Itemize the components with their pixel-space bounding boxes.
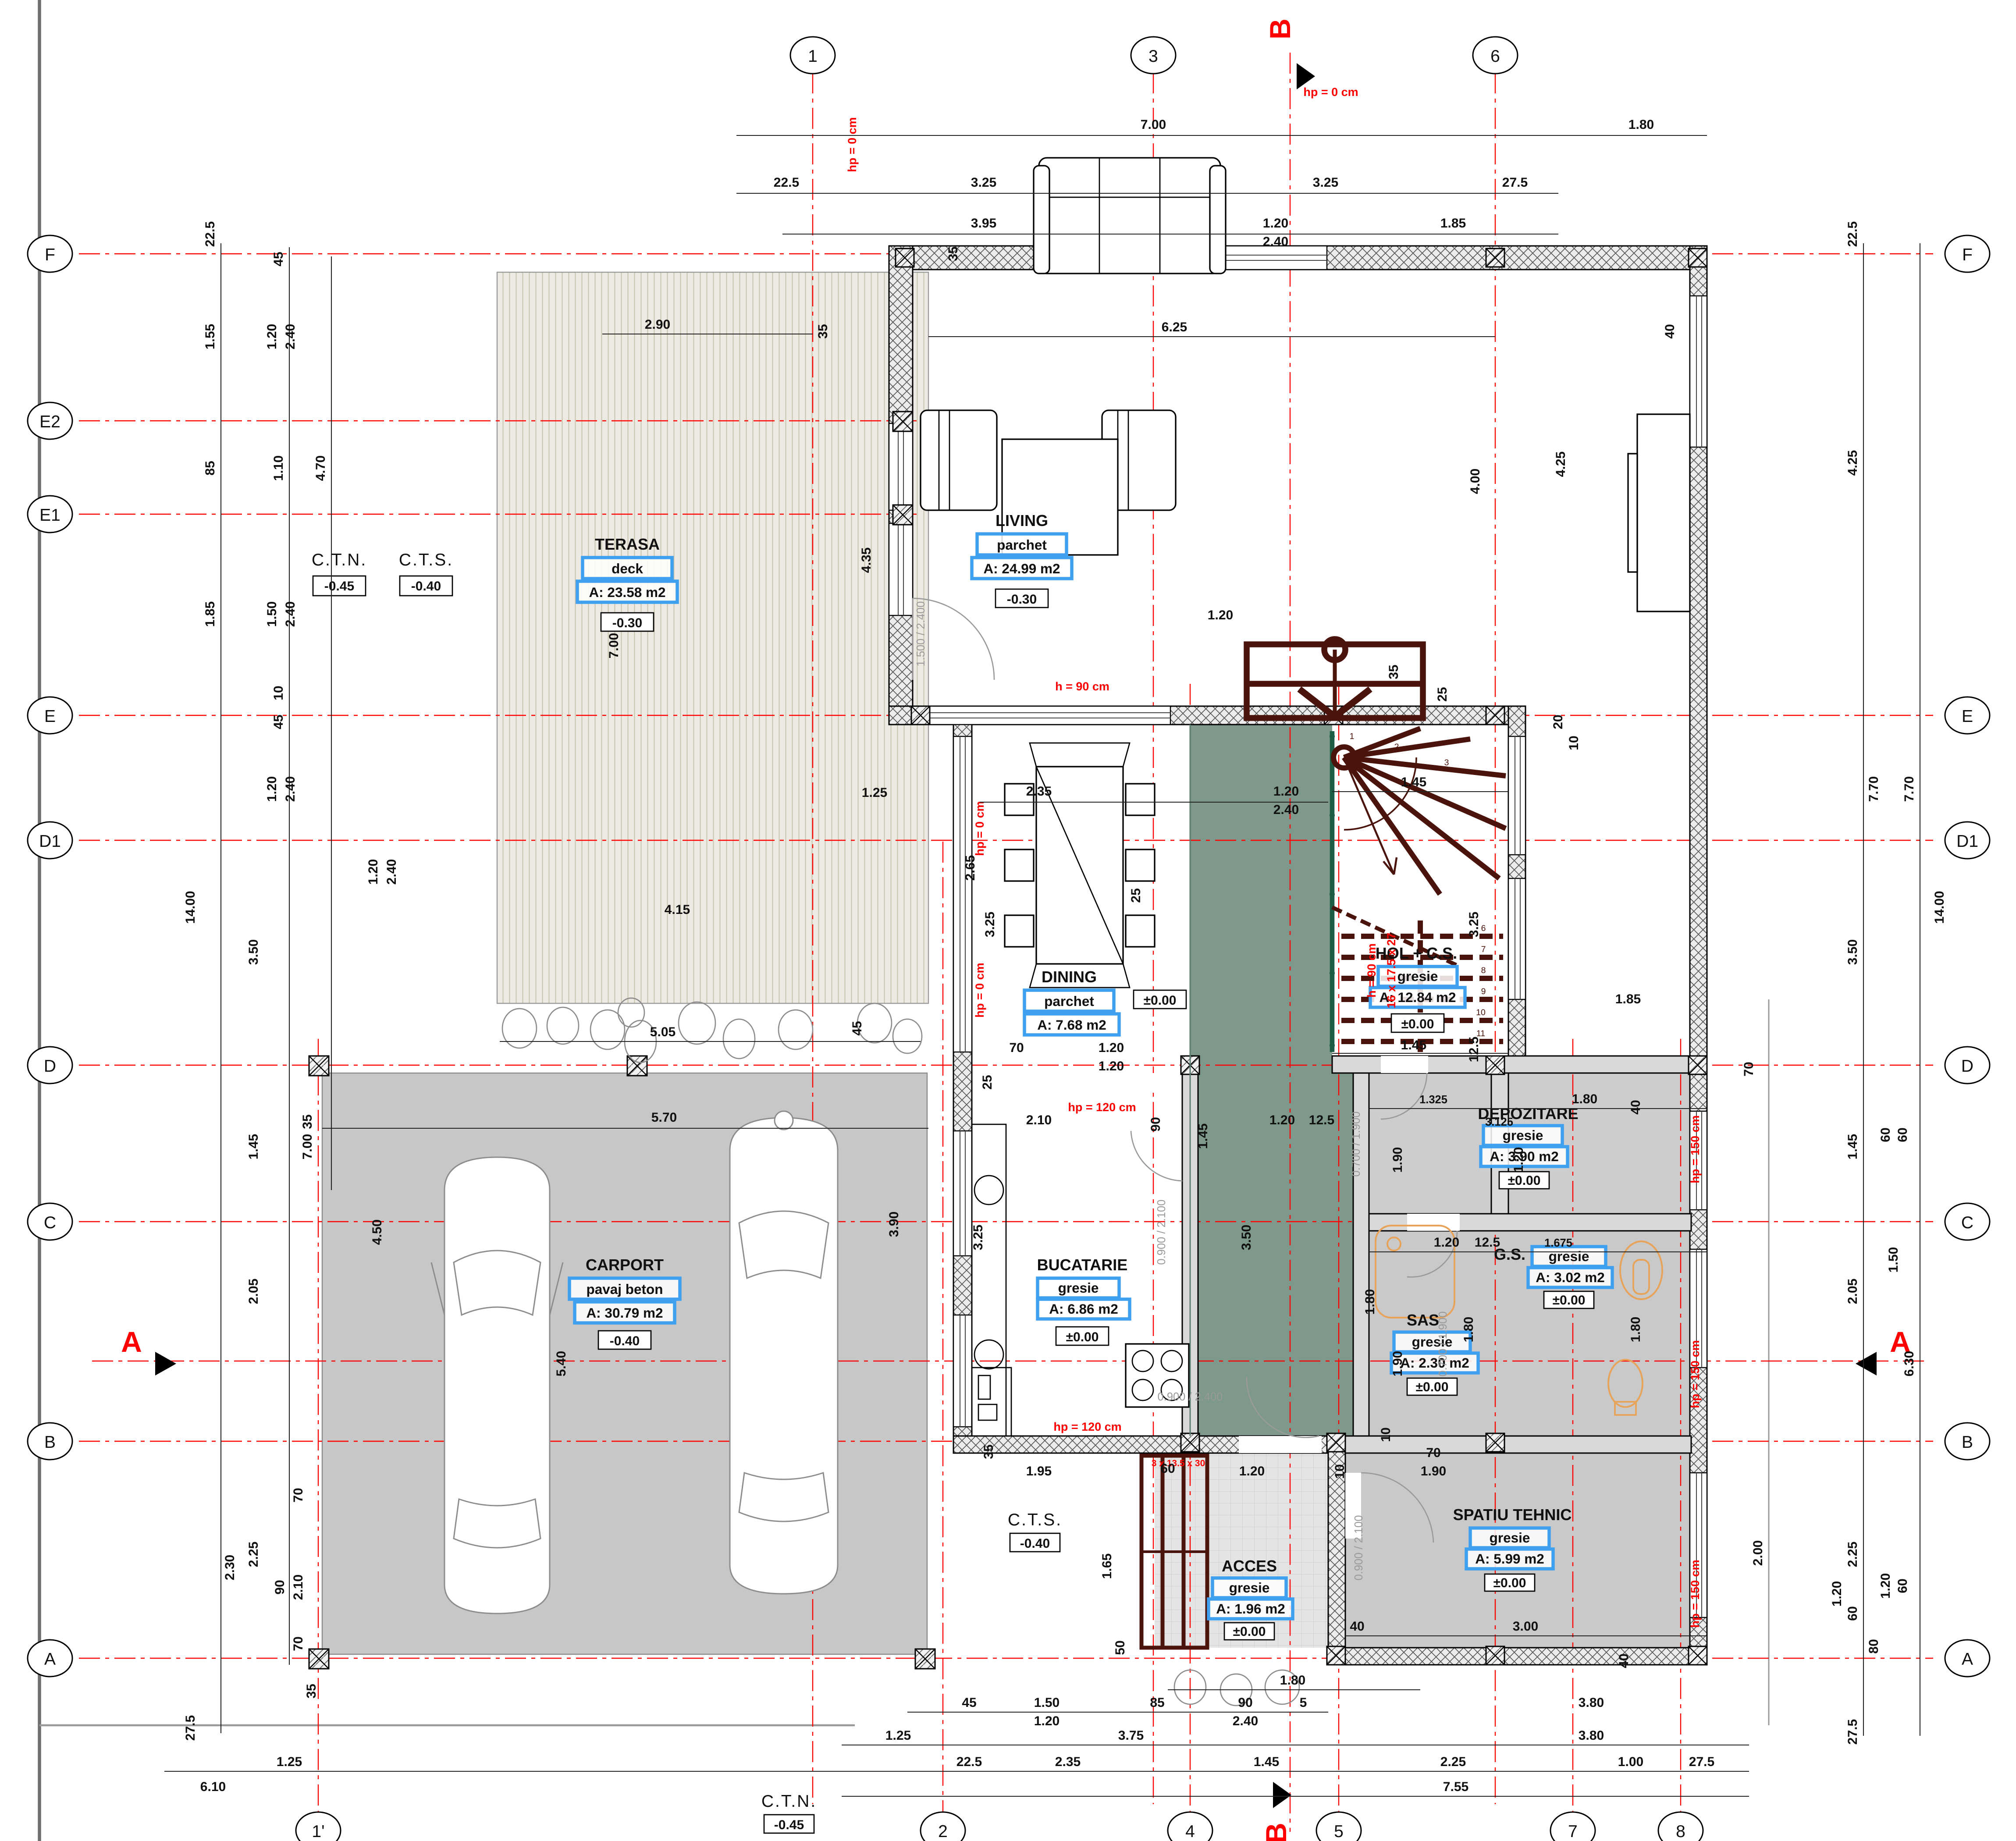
room-area: A: 2.30 m2 [1400,1355,1469,1371]
svg-text:2.10: 2.10 [1026,1113,1052,1127]
svg-text:1.20: 1.20 [1099,1059,1124,1073]
room-finish: deck [612,561,643,576]
room-level: ±0.00 [1553,1293,1586,1308]
grid-label: C [44,1213,56,1232]
svg-text:1.20: 1.20 [1263,216,1288,231]
room-finish: gresie [1549,1248,1589,1264]
grid-label: B [1962,1433,1973,1452]
armchair-1 [921,410,997,510]
hp-annotation: hp = 150 cm [1689,1560,1702,1628]
room-name: ACCES [1222,1557,1277,1575]
section-b-arrow-bottom [1273,1782,1291,1808]
svg-text:2.05: 2.05 [246,1279,261,1304]
door-size-label: 0.700 / 1.900 [1437,1311,1449,1377]
grid-label: A [44,1650,56,1669]
svg-text:2.05: 2.05 [1845,1279,1860,1304]
hp-annotation: hp = 120 cm [1053,1420,1121,1433]
svg-text:1.20: 1.20 [1034,1714,1060,1728]
svg-text:85: 85 [203,461,217,475]
svg-text:10: 10 [1379,1427,1393,1442]
svg-text:2: 2 [1394,742,1399,752]
svg-text:7.00: 7.00 [607,633,621,658]
grid-bubble-left-B: B [28,1423,72,1460]
svg-text:3.25: 3.25 [983,912,997,937]
room-finish: parchet [997,537,1047,553]
room-area: A: 23.58 m2 [589,584,665,600]
window-living-left-1 [889,423,913,510]
svg-text:1.50: 1.50 [1034,1695,1060,1710]
svg-text:3.25: 3.25 [1313,175,1338,190]
svg-text:70: 70 [291,1636,306,1651]
svg-text:1.20: 1.20 [1208,608,1233,622]
svg-text:60: 60 [1878,1127,1893,1142]
svg-text:1.20: 1.20 [1269,1113,1295,1127]
svg-text:2.35: 2.35 [1055,1755,1081,1769]
room-level: -0.40 [610,1334,640,1348]
svg-text:1.45: 1.45 [1401,1038,1426,1052]
ctn-value: -0.45 [324,579,354,594]
room-name: SAS [1407,1311,1439,1329]
svg-text:1.20: 1.20 [1434,1235,1459,1250]
svg-text:27.5: 27.5 [1845,1719,1860,1745]
room-area: A: 3.02 m2 [1536,1269,1605,1285]
hp-annotation: hp = 150 cm [1689,1115,1702,1183]
svg-text:90: 90 [1238,1695,1252,1710]
grid-label: 4 [1185,1822,1195,1841]
svg-text:45: 45 [271,252,286,266]
svg-text:1.20: 1.20 [1511,1147,1526,1173]
svg-text:9: 9 [1481,987,1486,996]
sofa [1034,158,1226,274]
door-opening-gs [1407,1214,1460,1231]
svg-text:4.25: 4.25 [1845,450,1860,476]
hp-annotation: hp = 0 cm [973,963,986,1017]
svg-text:1.25: 1.25 [885,1728,911,1743]
svg-text:1.65: 1.65 [1100,1553,1114,1579]
svg-text:2.90: 2.90 [645,317,670,332]
svg-text:35: 35 [304,1684,319,1698]
svg-text:2.25: 2.25 [1845,1542,1860,1567]
svg-text:1.20: 1.20 [1239,1464,1265,1478]
room-finish: gresie [1490,1530,1530,1546]
svg-text:6.10: 6.10 [200,1780,226,1794]
svg-text:2.65: 2.65 [963,855,978,881]
window-stair-1 [1508,736,1525,855]
svg-text:2.40: 2.40 [384,859,399,885]
svg-text:1.20: 1.20 [265,776,279,802]
svg-text:2.40: 2.40 [1233,1714,1258,1728]
terrace-deck-area [497,272,928,1003]
door-opening-hall [1239,1436,1322,1453]
car-1 [431,1157,563,1614]
grid-bubble-bottom-8: 8 [1658,1812,1703,1841]
svg-text:1.80: 1.80 [1628,1317,1643,1342]
grid-label: 7 [1568,1822,1578,1841]
svg-text:1.90: 1.90 [1390,1147,1405,1173]
svg-text:1.20: 1.20 [1099,1041,1124,1055]
svg-text:3: 3 [1444,758,1449,768]
grid-label: E [44,707,56,726]
svg-text:1.45: 1.45 [1401,775,1426,789]
svg-text:22.5: 22.5 [203,221,217,247]
svg-text:70: 70 [291,1488,306,1502]
svg-text:1.25: 1.25 [862,785,887,800]
grid-bubble-left-E2: E2 [28,402,72,439]
svg-text:2.40: 2.40 [283,324,298,349]
svg-text:3.00: 3.00 [1513,1619,1538,1634]
grid-label: F [1962,245,1973,264]
hp-annotation: hp = 0 cm [973,801,986,856]
grid-bubble-right-D: D [1945,1047,1990,1084]
svg-text:1.10: 1.10 [271,455,286,481]
svg-text:4.50: 4.50 [370,1219,384,1245]
svg-text:3.75: 3.75 [1118,1728,1144,1743]
svg-text:40: 40 [1350,1619,1364,1634]
grid-label: 1 [808,47,818,66]
svg-text:25: 25 [1129,888,1143,903]
cts-value-2: -0.40 [1020,1536,1050,1551]
svg-text:3.125: 3.125 [1485,1116,1513,1128]
door-opening-dep [1381,1056,1428,1073]
door-size-label: 0.700 / 1.900 [1350,1112,1362,1177]
svg-text:2.40: 2.40 [1263,235,1288,249]
grid-label: A [1962,1650,1973,1669]
svg-text:45: 45 [271,714,286,729]
grid-bubble-bottom-7: 7 [1550,1812,1595,1841]
svg-text:4.25: 4.25 [1554,451,1568,477]
svg-text:60: 60 [1895,1578,1910,1593]
svg-text:3.50: 3.50 [1845,939,1860,965]
room-level: ±0.00 [1066,1330,1099,1344]
svg-text:7.55: 7.55 [1443,1780,1468,1794]
svg-text:3.90: 3.90 [887,1212,901,1237]
grid-bubble-right-E: E [1945,697,1990,734]
svg-text:5.40: 5.40 [554,1351,569,1376]
svg-text:14.00: 14.00 [183,891,198,924]
room-area: A: 24.99 m2 [983,561,1060,576]
grid-bubble-bottom-2: 2 [921,1812,965,1841]
stair-winders [1344,729,1506,894]
svg-text:1.80: 1.80 [1363,1289,1377,1315]
svg-text:1.80: 1.80 [1572,1092,1597,1106]
room-level: ±0.00 [1416,1380,1449,1394]
svg-text:3.80: 3.80 [1579,1695,1604,1710]
grid-label: D [44,1057,56,1076]
svg-text:25: 25 [980,1075,995,1089]
svg-text:40: 40 [1617,1653,1631,1668]
grid-bubble-bottom-1p: 1' [296,1812,341,1841]
svg-text:1.20: 1.20 [1273,784,1299,799]
cts-label: C.T.S. [399,551,453,569]
svg-text:3.80: 3.80 [1579,1728,1604,1743]
svg-text:1.45: 1.45 [246,1134,261,1159]
svg-text:90: 90 [1148,1117,1163,1131]
grid-label: E2 [39,412,60,431]
svg-text:12.5: 12.5 [1467,1037,1481,1062]
room-finish: gresie [1397,968,1438,984]
svg-text:35: 35 [1387,665,1401,679]
grid-label: 6 [1490,47,1500,66]
svg-text:90: 90 [273,1580,287,1594]
room-finish: parchet [1044,993,1094,1009]
svg-text:8: 8 [1481,966,1486,975]
svg-text:3.50: 3.50 [246,939,261,965]
svg-text:4.35: 4.35 [859,547,874,573]
grid-bubble-right-A: A [1945,1640,1990,1677]
svg-text:2.40: 2.40 [1273,803,1299,817]
ctn-value-2: -0.45 [774,1818,804,1832]
svg-text:40: 40 [1628,1100,1643,1114]
svg-text:1.85: 1.85 [1615,992,1641,1006]
room-finish: gresie [1058,1280,1099,1296]
svg-text:35: 35 [300,1114,315,1129]
grid-bubble-right-F: F [1945,235,1990,272]
grid-label: 8 [1676,1822,1685,1841]
dimension-texts-bottom: 1.80 45 1.50 1.20 85 90 2.40 5 3.80 3.80… [200,1673,1714,1794]
svg-text:14.00: 14.00 [1932,891,1947,924]
svg-text:1.20: 1.20 [265,324,279,349]
svg-text:1.95: 1.95 [1026,1464,1052,1478]
svg-text:1.90: 1.90 [1390,1351,1405,1376]
svg-text:2.10: 2.10 [291,1574,306,1600]
dimension-texts-right: 22.5 4.25 7.70 7.70 3.50 14.00 1.45 2.05… [1830,221,1947,1745]
grid-bubble-bottom-5: 5 [1316,1812,1361,1841]
svg-text:2.00: 2.00 [1751,1540,1765,1566]
svg-text:7.00: 7.00 [300,1134,315,1159]
hp-annotation: hp = 0 cm [846,117,859,172]
svg-text:6.25: 6.25 [1162,320,1187,334]
svg-text:10: 10 [1476,1008,1486,1017]
svg-text:7.00: 7.00 [1141,117,1166,132]
svg-text:35: 35 [946,246,960,261]
svg-text:1.50: 1.50 [1886,1247,1901,1272]
svg-text:2.35: 2.35 [1026,784,1052,799]
svg-text:6.30: 6.30 [1902,1351,1916,1376]
cts-value: -0.40 [411,579,441,594]
room-level: ±0.00 [1233,1624,1266,1639]
grid-label: 2 [938,1822,948,1841]
svg-text:3.25: 3.25 [971,1225,985,1250]
svg-text:1.45: 1.45 [1254,1755,1279,1769]
room-level: ±0.00 [1144,993,1177,1008]
svg-text:10: 10 [271,686,286,700]
grid-bubble-left-D: D [28,1047,72,1084]
grid-bubble-left-D1: D1 [28,822,72,859]
grid-bubble-right-C: C [1945,1203,1990,1240]
svg-text:1.80: 1.80 [1461,1317,1476,1342]
svg-text:45: 45 [962,1695,976,1710]
grid-bubble-top-3: 3 [1131,37,1176,74]
svg-text:1.80: 1.80 [1628,117,1654,132]
grid-label: D [1961,1057,1973,1076]
grid-bubble-right-B: B [1945,1423,1990,1460]
svg-text:10: 10 [1333,1464,1347,1478]
grid-bubble-top-6: 6 [1473,37,1518,74]
door-size-label: 0.900 / 2.100 [1156,1200,1168,1265]
svg-text:4.70: 4.70 [313,455,328,481]
tv-unit [1628,414,1690,611]
grid-bubble-left-A: A [28,1640,72,1677]
section-a-arrow-left [155,1352,176,1375]
stair-annotation: 16 x 17.5 x 27 [1385,933,1398,1009]
room-finish: pavaj beton [586,1281,663,1297]
svg-text:5.05: 5.05 [650,1025,676,1039]
svg-text:12.5: 12.5 [1475,1235,1500,1250]
grid-label: E1 [39,506,60,525]
room-bucatarie: BUCATARIE gresie A: 6.86 m2 ±0.00 [1037,1256,1130,1345]
svg-text:7.70: 7.70 [1867,776,1881,802]
svg-text:7: 7 [1481,945,1486,954]
svg-text:1.50: 1.50 [265,601,279,627]
svg-text:1.20: 1.20 [1878,1573,1893,1599]
svg-text:27.5: 27.5 [183,1715,198,1741]
window-living-left-2 [889,523,913,615]
grid-label: 3 [1148,47,1158,66]
svg-text:10: 10 [1567,736,1581,750]
room-level: ±0.00 [1401,1017,1434,1031]
room-name: SPATIU TEHNIC [1453,1506,1572,1524]
window-kitchen-2 [953,1315,972,1427]
floor-plan-sheet: 1 3 6 1' 2 4 5 7 8 F E2 E1 E D1 D C B A … [0,0,2016,1841]
room-area: A: 6.86 m2 [1049,1301,1118,1317]
window-kitchen-1 [953,1131,972,1256]
svg-text:35: 35 [981,1444,996,1459]
window-dining-west [953,736,972,1052]
section-b-label-bottom: B [1260,1823,1292,1841]
grid-bubble-bottom-4: 4 [1168,1812,1212,1841]
svg-text:7.70: 7.70 [1902,776,1916,802]
room-name: BUCATARIE [1037,1256,1128,1274]
floor-plan-drawing: 1 3 6 1' 2 4 5 7 8 F E2 E1 E D1 D C B A … [0,0,2016,1841]
svg-text:1.80: 1.80 [1280,1673,1305,1688]
svg-text:2.40: 2.40 [283,776,298,802]
grid-bubble-left-F: F [28,235,72,272]
room-area: A: 7.68 m2 [1037,1017,1106,1033]
section-a-label-left: A [121,1326,142,1358]
svg-text:12.5: 12.5 [1309,1113,1334,1127]
svg-text:1.325: 1.325 [1419,1094,1447,1106]
svg-text:5.70: 5.70 [651,1110,677,1125]
svg-text:2.25: 2.25 [246,1542,261,1567]
grid-bubble-left-E1: E1 [28,496,72,533]
grid-bubble-left-E: E [28,697,72,734]
svg-text:85: 85 [1150,1695,1164,1710]
svg-text:1.00: 1.00 [1618,1755,1643,1769]
svg-text:20: 20 [1551,714,1565,729]
grid-label: C [1961,1213,1973,1232]
svg-text:35: 35 [816,324,830,338]
svg-text:27.5: 27.5 [1502,175,1528,190]
svg-text:27.5: 27.5 [1689,1755,1714,1769]
room-name: CARPORT [586,1256,664,1274]
h90-annotation: h = 90 cm [1055,680,1109,693]
grid-label: E [1962,707,1973,726]
room-level: -0.30 [1007,592,1037,607]
door-opening-kitchen [1131,1073,1176,1089]
grid-label: D1 [1956,832,1978,851]
room-name: LIVING [996,512,1048,530]
svg-text:1.45: 1.45 [1196,1123,1210,1149]
room-level: ±0.00 [1493,1576,1526,1590]
room-name: TERASA [595,535,660,553]
svg-text:1.55: 1.55 [203,324,217,349]
svg-text:45: 45 [850,1021,864,1035]
hp-annotation: hp = 0 cm [1303,85,1358,99]
svg-text:2.25: 2.25 [1440,1755,1466,1769]
svg-text:1.20: 1.20 [1830,1581,1844,1606]
svg-text:3.95: 3.95 [971,216,996,231]
svg-text:3.25: 3.25 [971,175,996,190]
svg-text:4.15: 4.15 [665,903,690,917]
grid-label: B [44,1433,56,1452]
svg-text:80: 80 [1867,1639,1881,1653]
svg-text:4.00: 4.00 [1468,469,1483,494]
room-area: A: 1.96 m2 [1216,1601,1285,1617]
svg-text:6: 6 [1481,924,1486,933]
hp-annotation: hp = 120 cm [1068,1101,1136,1114]
room-name: DINING [1042,968,1097,986]
grid-label: F [45,245,55,264]
svg-text:60: 60 [1845,1606,1860,1621]
car-2 [730,1111,838,1594]
svg-text:5: 5 [1300,1695,1307,1710]
svg-text:22.5: 22.5 [774,175,799,190]
room-level: ±0.00 [1508,1173,1541,1188]
grid-label: D1 [39,832,61,851]
ctn-label-2: C.T.N. [761,1792,817,1811]
door-arc-kitchen [1131,1131,1182,1181]
svg-text:1: 1 [1350,732,1355,741]
grid-label: 5 [1334,1822,1344,1841]
room-finish: gresie [1503,1127,1543,1143]
svg-text:2.40: 2.40 [283,601,298,627]
svg-text:22.5: 22.5 [1845,221,1860,247]
door-size-label: 0.900 / 2.100 [1353,1515,1365,1581]
svg-text:3.50: 3.50 [1239,1225,1254,1250]
svg-text:60: 60 [1160,1461,1175,1476]
svg-text:50: 50 [1113,1640,1127,1655]
dining-table [1005,743,1155,988]
svg-text:1.90: 1.90 [1421,1464,1446,1478]
svg-text:3.25: 3.25 [1467,912,1481,937]
room-area: A: 30.79 m2 [586,1305,663,1321]
stair-annotation: h = 90 cm [1365,943,1378,998]
door-size-label: 1.500 / 2.400 [915,601,927,667]
grid-bubble-left-C: C [28,1203,72,1240]
svg-text:60: 60 [1895,1127,1910,1142]
room-finish: gresie [1229,1580,1270,1596]
section-b-label-top: B [1264,18,1296,39]
svg-text:22.5: 22.5 [956,1755,982,1769]
svg-text:1.85: 1.85 [203,601,217,627]
grid-label: 1' [312,1822,324,1841]
window-stair-2 [1508,878,1525,999]
room-dining: DINING parchet A: 7.68 m2 ±0.00 [1024,968,1186,1035]
svg-text:1.85: 1.85 [1440,216,1466,231]
svg-text:70: 70 [1426,1446,1440,1460]
room-level: -0.30 [612,616,642,630]
hp-annotation: hp = 150 cm [1689,1340,1702,1408]
section-a-arrow-right [1856,1352,1877,1375]
svg-text:70: 70 [1009,1041,1024,1055]
cts-label-2: C.T.S. [1008,1510,1062,1529]
ctn-label: C.T.N. [312,551,367,569]
svg-text:1.45: 1.45 [1845,1134,1860,1159]
window-living-south [921,706,1170,725]
door-size-label: 0.900 / 2.400 [1158,1391,1223,1403]
svg-text:1.20: 1.20 [366,859,380,885]
steps-annotation: 3 x 13.5 x 30 [1152,1458,1205,1468]
